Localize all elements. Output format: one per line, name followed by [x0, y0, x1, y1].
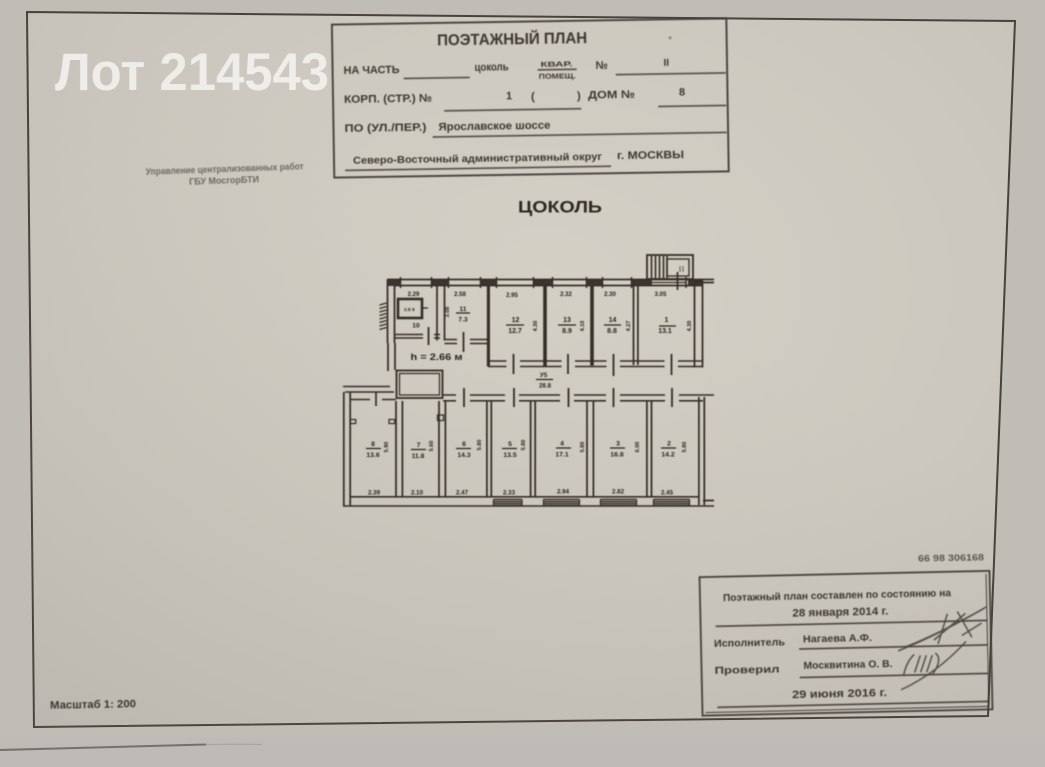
- svg-text:13.1: 13.1: [658, 328, 672, 335]
- svg-text:12.7: 12.7: [508, 328, 522, 335]
- svg-text:(: (: [531, 91, 535, 103]
- svg-text:У5: У5: [540, 372, 548, 379]
- svg-text:Ярославское шоссе: Ярославское шоссе: [438, 120, 550, 134]
- svg-text:ДОМ №: ДОМ №: [588, 89, 635, 102]
- svg-text:5.80: 5.80: [580, 442, 586, 453]
- svg-text:Исполнитель: Исполнитель: [714, 636, 786, 650]
- svg-text:5.80: 5.80: [682, 442, 688, 453]
- svg-text:5.60: 5.60: [429, 441, 435, 452]
- svg-text:8.8: 8.8: [607, 328, 617, 335]
- svg-text:13: 13: [563, 317, 571, 324]
- svg-text:Проверил: Проверил: [714, 663, 779, 676]
- svg-text:2.29: 2.29: [408, 292, 420, 298]
- svg-text:3.05: 3.05: [655, 292, 667, 298]
- svg-text:2.95: 2.95: [506, 293, 518, 299]
- svg-text:3.08: 3.08: [445, 307, 451, 318]
- svg-text:Москвитина О. В.: Москвитина О. В.: [803, 658, 892, 672]
- svg-text:2.45: 2.45: [661, 490, 674, 497]
- svg-text:2.10: 2.10: [411, 490, 424, 497]
- svg-text:1: 1: [506, 90, 512, 102]
- svg-text:13.6: 13.6: [366, 452, 379, 459]
- svg-text:ПОМЕЩ.: ПОМЕЩ.: [539, 71, 576, 81]
- svg-text:14.2: 14.2: [661, 452, 674, 459]
- svg-text:2.82: 2.82: [612, 489, 625, 496]
- svg-text:2.33: 2.33: [503, 490, 516, 497]
- svg-text:4.10: 4.10: [580, 321, 586, 332]
- svg-text:5.80: 5.80: [477, 440, 483, 451]
- svg-text:66 98 306168: 66 98 306168: [918, 552, 984, 564]
- svg-text:г. МОСКВЫ: г. МОСКВЫ: [617, 149, 684, 162]
- svg-text:4: 4: [560, 441, 564, 448]
- svg-text:h = 2.66 м: h = 2.66 м: [411, 352, 463, 363]
- svg-text:7: 7: [417, 442, 421, 449]
- svg-text:2.30: 2.30: [604, 292, 616, 298]
- svg-text:12: 12: [512, 317, 520, 324]
- svg-text:2.32: 2.32: [560, 292, 572, 298]
- svg-text:4.30: 4.30: [533, 321, 539, 332]
- svg-text:4.27: 4.27: [626, 321, 632, 332]
- svg-text:6.00: 6.00: [635, 442, 641, 453]
- svg-text:2.47: 2.47: [456, 490, 469, 497]
- svg-text:1: 1: [665, 317, 669, 324]
- svg-text:13.5: 13.5: [503, 452, 516, 459]
- svg-text:цоколь: цоколь: [474, 61, 508, 74]
- svg-text:2.58: 2.58: [454, 292, 466, 298]
- svg-text:5.90: 5.90: [384, 442, 390, 453]
- svg-text:2: 2: [667, 441, 671, 448]
- svg-text:2.6 9: 2.6 9: [404, 307, 415, 313]
- svg-text:Масштаб 1: 200: Масштаб 1: 200: [50, 698, 136, 711]
- svg-text:11.8: 11.8: [412, 453, 425, 460]
- svg-text:5.80: 5.80: [521, 440, 527, 451]
- svg-text:7.3: 7.3: [458, 317, 468, 324]
- svg-text:28 января 2014 г.: 28 января 2014 г.: [792, 606, 888, 620]
- svg-text:ПО (УЛ./ПЕР.): ПО (УЛ./ПЕР.): [344, 122, 427, 135]
- svg-text:КОРП. (СТР.) №: КОРП. (СТР.) №: [344, 93, 432, 106]
- svg-text:3: 3: [616, 441, 620, 448]
- svg-text:II: II: [663, 58, 669, 69]
- svg-text:8: 8: [679, 87, 685, 99]
- svg-text:29 июня 2016 г.: 29 июня 2016 г.: [792, 687, 887, 701]
- svg-text:2.39: 2.39: [368, 490, 381, 497]
- svg-text:КВАР.: КВАР.: [540, 59, 572, 69]
- svg-text:28.8: 28.8: [539, 383, 552, 390]
- svg-text:5: 5: [508, 441, 512, 448]
- svg-text:10: 10: [412, 323, 420, 330]
- svg-text:8: 8: [371, 441, 375, 448]
- svg-text:8.9: 8.9: [562, 328, 572, 335]
- svg-text:): ): [577, 90, 581, 102]
- svg-text:Лот 214543: Лот 214543: [55, 43, 329, 102]
- svg-text:ЦОКОЛЬ: ЦОКОЛЬ: [518, 199, 602, 217]
- svg-text:№: №: [595, 60, 607, 72]
- svg-text:Нагаева А.Ф.: Нагаева А.Ф.: [803, 632, 872, 646]
- svg-text:17.1: 17.1: [555, 452, 568, 459]
- svg-text:4.30: 4.30: [687, 321, 693, 332]
- svg-text:НА ЧАСТЬ: НА ЧАСТЬ: [344, 64, 400, 77]
- svg-text:2.94: 2.94: [557, 489, 570, 496]
- svg-text:16.8: 16.8: [610, 452, 623, 459]
- svg-text:6: 6: [462, 441, 466, 448]
- svg-text:11: 11: [459, 306, 466, 313]
- svg-text:ПОЭТАЖНЫЙ ПЛАН: ПОЭТАЖНЫЙ ПЛАН: [437, 29, 587, 49]
- svg-text:14.3: 14.3: [457, 452, 470, 459]
- svg-text:14: 14: [609, 317, 617, 324]
